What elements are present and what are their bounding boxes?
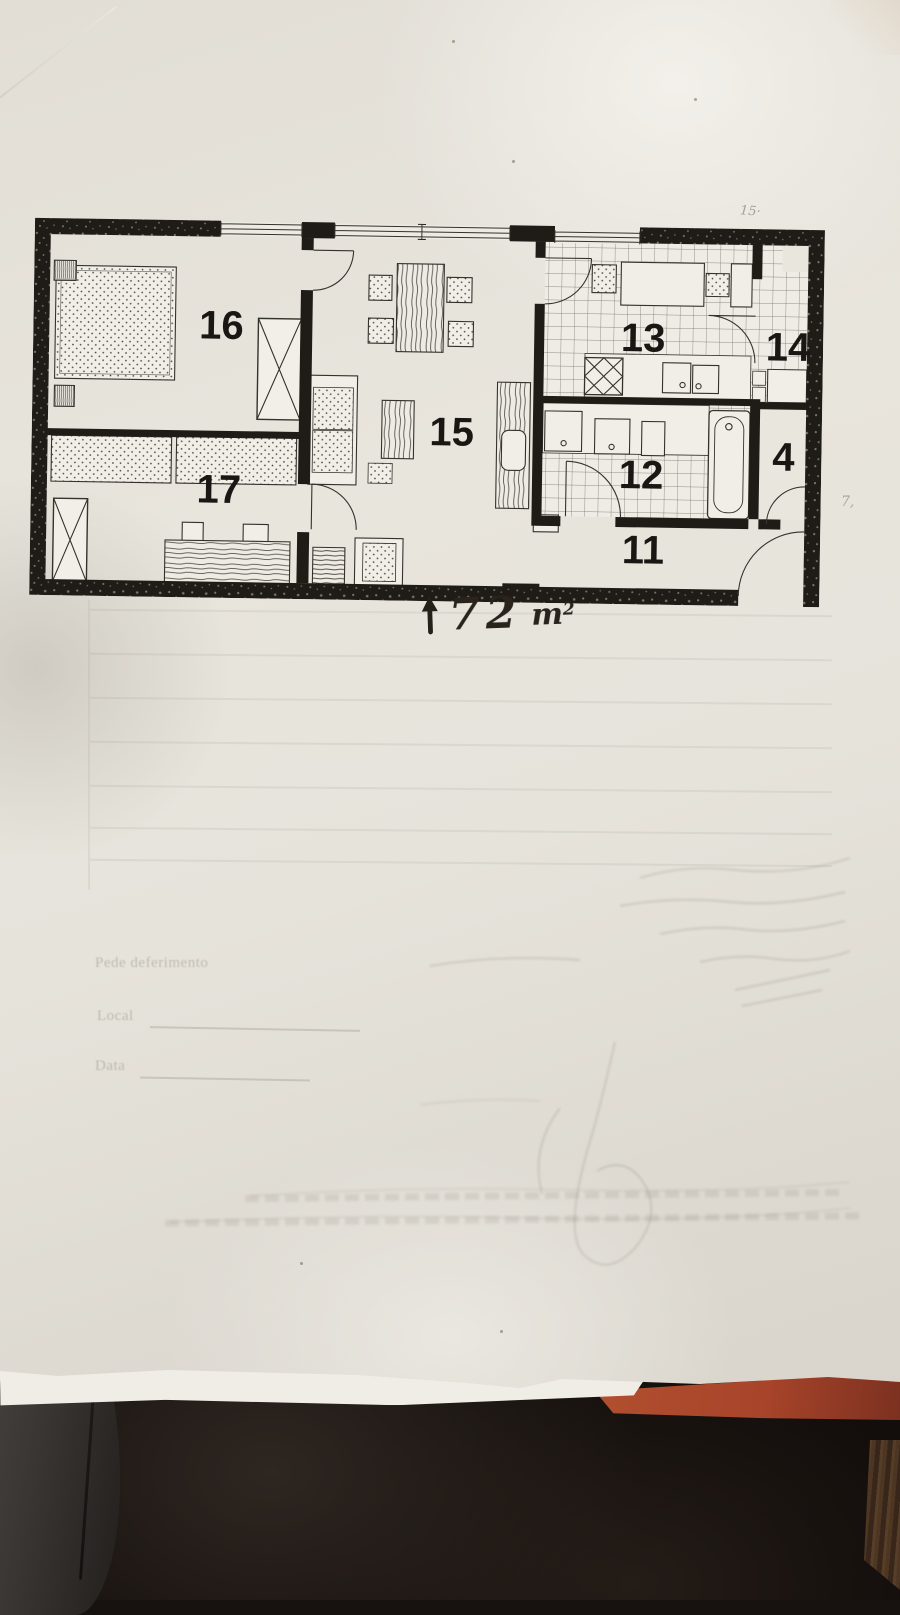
ghost-place-label: Local — [97, 1008, 134, 1025]
ghost-form-rule — [90, 697, 832, 705]
sink-symbol — [662, 363, 690, 393]
paper-crease — [0, 6, 117, 100]
windows — [221, 222, 640, 245]
wardrobe-symbol — [257, 318, 302, 420]
room-number-11: 11 — [621, 528, 664, 573]
nightstand-symbol — [54, 385, 74, 406]
single-bed-symbol — [51, 435, 172, 483]
ghost-form-rule — [90, 741, 832, 749]
ghost-form-rule — [90, 785, 832, 793]
paper-speck — [452, 40, 455, 43]
room-number-15: 15 — [429, 410, 474, 455]
wardrobe-symbol — [52, 498, 87, 582]
area-annotation: 72 m2 — [419, 589, 575, 640]
paper-speck — [500, 1330, 503, 1333]
small-box-symbol — [753, 371, 766, 385]
balcony-corner-floor — [782, 246, 808, 272]
ghost-print-line — [245, 1189, 845, 1202]
cabinet-symbol — [496, 382, 531, 509]
appliance-symbol — [641, 421, 665, 455]
room-16-furniture — [52, 260, 302, 420]
room-number-17: 17 — [196, 467, 241, 512]
room-17-furniture — [49, 431, 296, 585]
pencil-mark-top: 15· — [740, 203, 762, 219]
stool-symbol — [706, 273, 729, 296]
counter-symbol — [621, 262, 705, 306]
chair-symbol — [243, 524, 268, 543]
double-bed-symbol — [55, 265, 177, 380]
ghost-date-label: Data — [95, 1058, 125, 1075]
stool-symbol — [592, 265, 616, 293]
desk-symbol — [164, 540, 290, 584]
fridge-symbol — [731, 264, 753, 307]
paper-speck — [694, 98, 697, 101]
dining-table-symbol — [396, 264, 444, 353]
room-number-4: 4 — [772, 435, 796, 479]
ghost-form-rule — [90, 653, 832, 661]
pouf-symbol — [368, 463, 392, 483]
document-paper: Pede deferimento Local Data — [0, 0, 900, 1392]
entrance-door — [738, 531, 804, 597]
area-value: 72 — [448, 591, 523, 638]
north-arrow-icon — [419, 596, 441, 641]
room-number-14: 14 — [766, 325, 812, 370]
paper-corner-tint — [830, 0, 900, 55]
room-number-13: 13 — [621, 316, 666, 361]
ghost-petition-closing: Pede deferimento — [95, 955, 208, 972]
ghost-date-line — [140, 1077, 310, 1082]
window-kitchen — [555, 230, 640, 244]
chair-symbol — [368, 318, 393, 343]
chair-symbol — [369, 275, 392, 300]
counter-symbol — [767, 369, 807, 403]
door-bedroom-17 — [311, 484, 357, 530]
area-unit: m2 — [531, 599, 576, 631]
ghost-form-rule — [90, 827, 832, 835]
room-number-16: 16 — [199, 303, 244, 348]
floor-plan-drawing: 16 17 15 13 14 12 11 4 — [29, 213, 825, 607]
sofa-symbol — [308, 375, 358, 485]
chair-symbol — [448, 321, 473, 346]
ghost-form-rule — [90, 859, 832, 867]
ghost-print-line — [165, 1212, 865, 1226]
bathtub-symbol — [707, 410, 750, 519]
door-bedroom-16 — [313, 250, 354, 291]
ghost-form-rule — [88, 600, 90, 890]
stove-symbol — [584, 357, 623, 395]
chair-symbol — [182, 522, 203, 542]
window-living — [335, 224, 510, 241]
chair-symbol — [447, 277, 472, 302]
armchair-symbol — [354, 538, 403, 586]
floor-plan: 16 17 15 13 14 12 11 4 — [29, 213, 825, 607]
room-number-12: 12 — [619, 453, 664, 498]
room-15-furniture — [306, 262, 532, 587]
window-bedroom — [221, 222, 302, 237]
sink-symbol — [692, 365, 718, 393]
paper-speck — [300, 1262, 303, 1265]
coffee-table-symbol — [381, 400, 414, 458]
paper-speck — [512, 160, 515, 163]
side-table-symbol — [312, 547, 345, 584]
ghost-place-line — [150, 1026, 360, 1031]
pencil-mark-right: 7, — [841, 494, 854, 510]
nightstand-symbol — [54, 260, 76, 280]
